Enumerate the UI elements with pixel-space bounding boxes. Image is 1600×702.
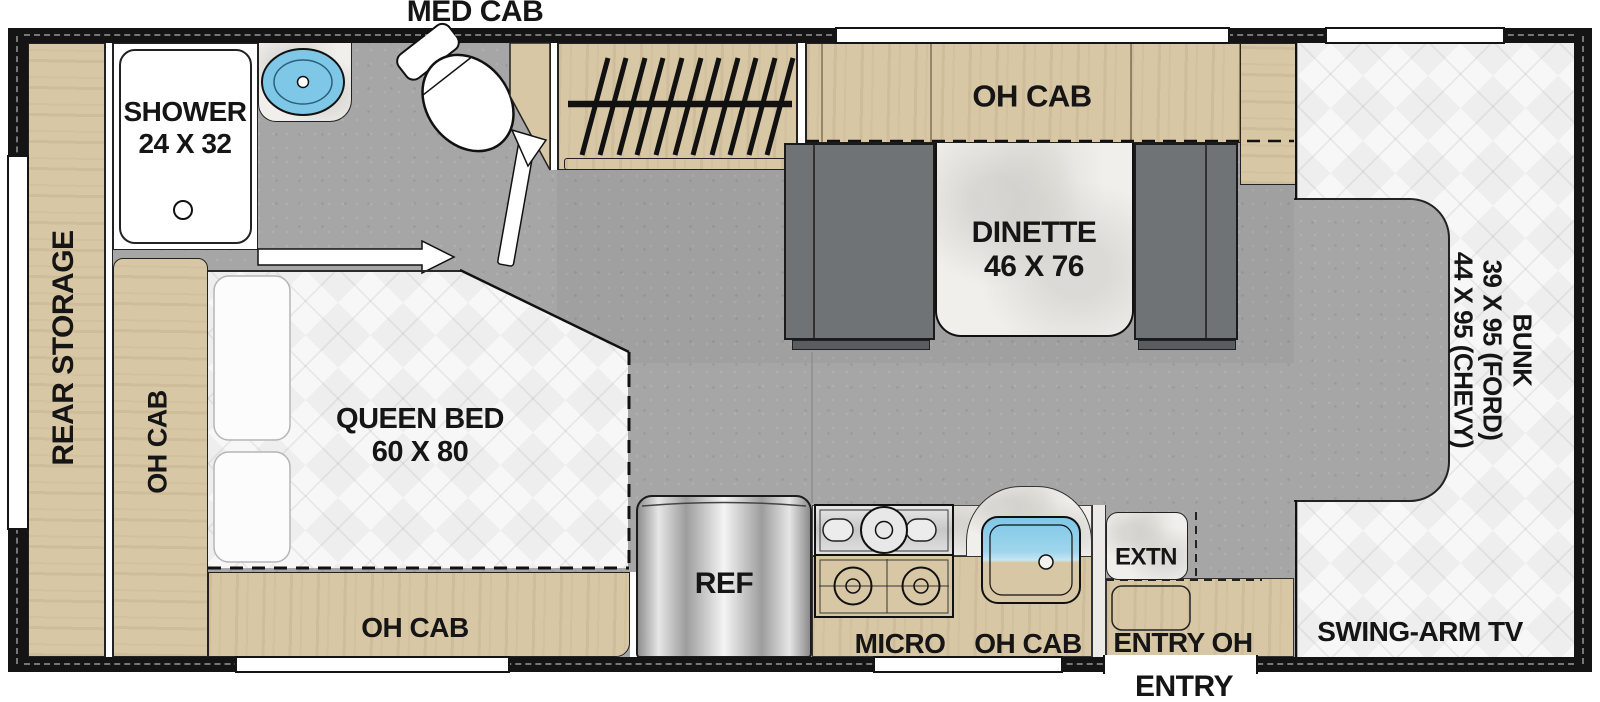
floorplan-canvas: MED CAB SHOWER 24 X 32 REAR STORAGE OH C… xyxy=(0,0,1600,702)
bench-foot-left xyxy=(792,340,930,350)
wall-right-dashes xyxy=(1582,36,1584,664)
vanity-counter xyxy=(258,43,352,122)
ref-label: REF xyxy=(695,567,754,601)
tall-cabinet xyxy=(1240,43,1296,185)
micro-label: MICRO xyxy=(855,628,946,660)
window-top-dinette xyxy=(835,27,1230,44)
bed-side-oh-cab-label: OH CAB xyxy=(143,390,174,494)
swing-arm-tv-label: SWING-ARM TV xyxy=(1317,616,1523,648)
rear-storage-label: REAR STORAGE xyxy=(47,230,81,465)
dinette-label: DINETTE 46 X 76 xyxy=(972,216,1097,284)
dinette-oh-cab-label: OH CAB xyxy=(972,78,1091,113)
window-top-cab xyxy=(1325,27,1505,44)
window-left-rear xyxy=(7,155,29,530)
med-cab-label: MED CAB xyxy=(407,0,544,29)
wardrobe-gap xyxy=(550,43,558,170)
wardrobe xyxy=(558,43,797,170)
wardrobe-trim xyxy=(564,158,791,170)
entry-oh-label: ENTRY OH xyxy=(1113,627,1252,659)
cab-floor-protrusion xyxy=(1294,198,1450,502)
corridor-gap xyxy=(105,43,113,657)
entry-label: ENTRY xyxy=(1135,670,1233,702)
extn-label: EXTN xyxy=(1115,543,1177,570)
bunk-label: BUNK 39 X 95 (FORD) 44 X 95 (CHEVY) xyxy=(1448,252,1537,448)
counter-divider xyxy=(1092,505,1106,657)
dinette-bench-right xyxy=(1134,143,1238,340)
dinette-bench-left xyxy=(784,143,935,340)
shower-label: SHOWER 24 X 32 xyxy=(124,96,247,160)
wardrobe-right-gap xyxy=(797,43,806,143)
queen-bed-label: QUEEN BED 60 X 80 xyxy=(336,403,504,469)
window-bottom-bedroom xyxy=(235,656,510,673)
kitchen-oh-cab-label: OH CAB xyxy=(974,628,1081,660)
bed-oh-cab-label: OH CAB xyxy=(361,612,468,644)
bench-foot-right xyxy=(1138,340,1236,350)
